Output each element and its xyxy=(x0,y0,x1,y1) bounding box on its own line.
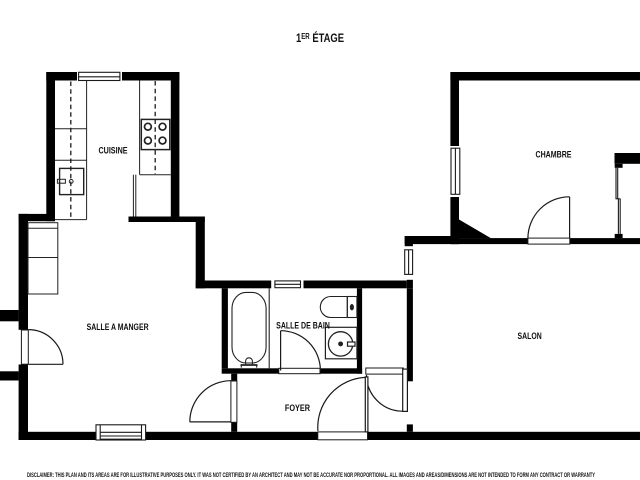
svg-text:FOYER: FOYER xyxy=(285,402,310,413)
svg-text:SALON: SALON xyxy=(518,330,542,341)
svg-text:CUISINE: CUISINE xyxy=(99,145,128,156)
svg-text:SALLE A MANGER: SALLE A MANGER xyxy=(87,321,149,332)
svg-text:SALLE DE BAIN: SALLE DE BAIN xyxy=(276,320,330,331)
svg-text:DISCLAIMER: THIS PLAN AND ITS: DISCLAIMER: THIS PLAN AND ITS AREAS ARE … xyxy=(27,472,595,479)
svg-text:CHAMBRE: CHAMBRE xyxy=(536,149,572,160)
